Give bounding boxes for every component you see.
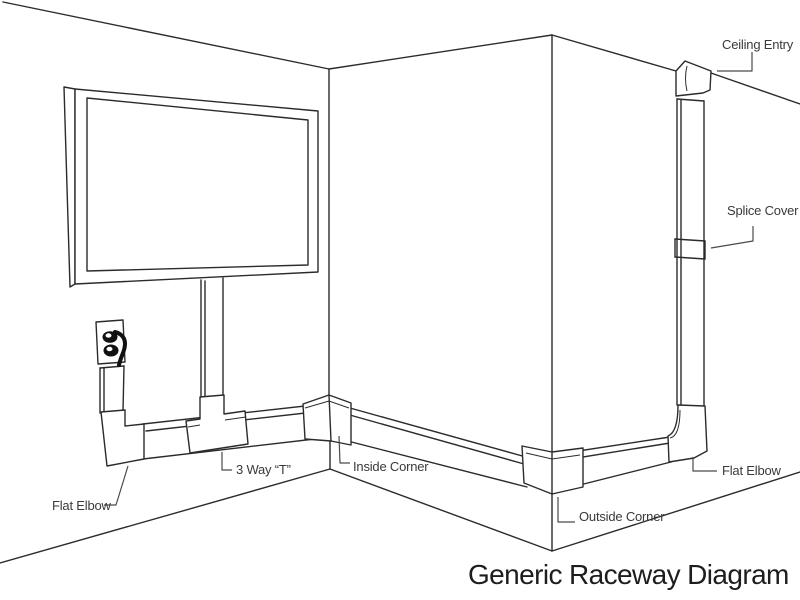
outlet (96, 320, 125, 365)
outside-corner-leader (558, 497, 575, 522)
splice-cover-leader (711, 226, 753, 248)
flat-elbow-right-fitting (668, 405, 707, 462)
vertical-raceway-right (677, 99, 704, 407)
tv (64, 87, 318, 287)
raceway-diagram: Ceiling Entry Splice Cover Flat Elbow Ou… (0, 0, 800, 600)
flat-elbow-right-leader (693, 457, 717, 471)
tv-raceway-drop (201, 278, 223, 398)
label-outside-corner: Outside Corner (579, 509, 664, 524)
outside-corner-fitting (522, 446, 583, 494)
tv-screen (87, 98, 308, 271)
label-splice-cover: Splice Cover (727, 203, 798, 218)
flat-elbow-left-fitting (101, 410, 144, 466)
ceiling-entry-fitting (676, 61, 711, 101)
label-flat-elbow-left: Flat Elbow (52, 498, 111, 513)
label-three-way-t: 3 Way “T” (236, 462, 291, 477)
three-way-t-fitting (186, 395, 248, 453)
diagram-line-art (0, 0, 800, 600)
label-ceiling-entry: Ceiling Entry (722, 37, 793, 52)
outlet-raceway-drop (100, 366, 124, 413)
tv-side-face (64, 87, 75, 287)
label-inside-corner: Inside Corner (353, 459, 428, 474)
diagram-title: Generic Raceway Diagram (468, 559, 789, 591)
inside-corner-fitting (303, 395, 351, 445)
ceiling-entry-leader (717, 52, 752, 71)
splice-cover-fitting (675, 239, 705, 259)
label-flat-elbow-right: Flat Elbow (722, 463, 781, 478)
three-way-t-leader (222, 452, 232, 470)
